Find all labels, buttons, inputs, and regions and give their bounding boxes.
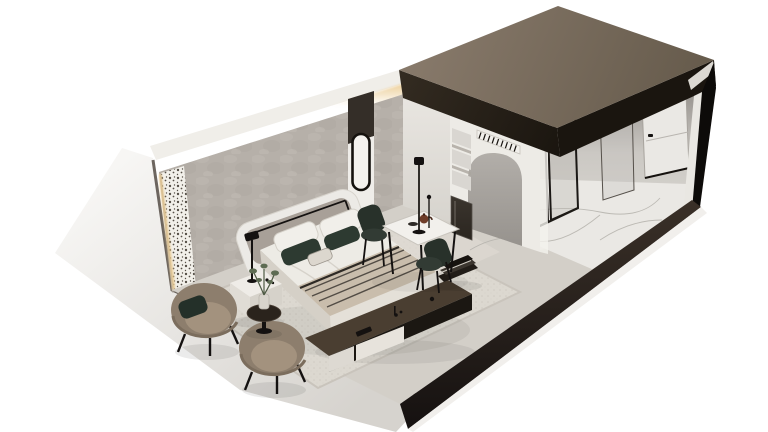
open-shelving-unit	[452, 128, 471, 191]
vase	[259, 294, 269, 309]
render-canvas	[0, 0, 768, 432]
armchair-1	[171, 283, 239, 360]
dining-wall	[403, 98, 450, 222]
oval-mirror	[353, 134, 370, 190]
isometric-room-render	[0, 0, 768, 432]
arch-wall-edge	[540, 148, 548, 254]
door-handle	[648, 134, 653, 137]
